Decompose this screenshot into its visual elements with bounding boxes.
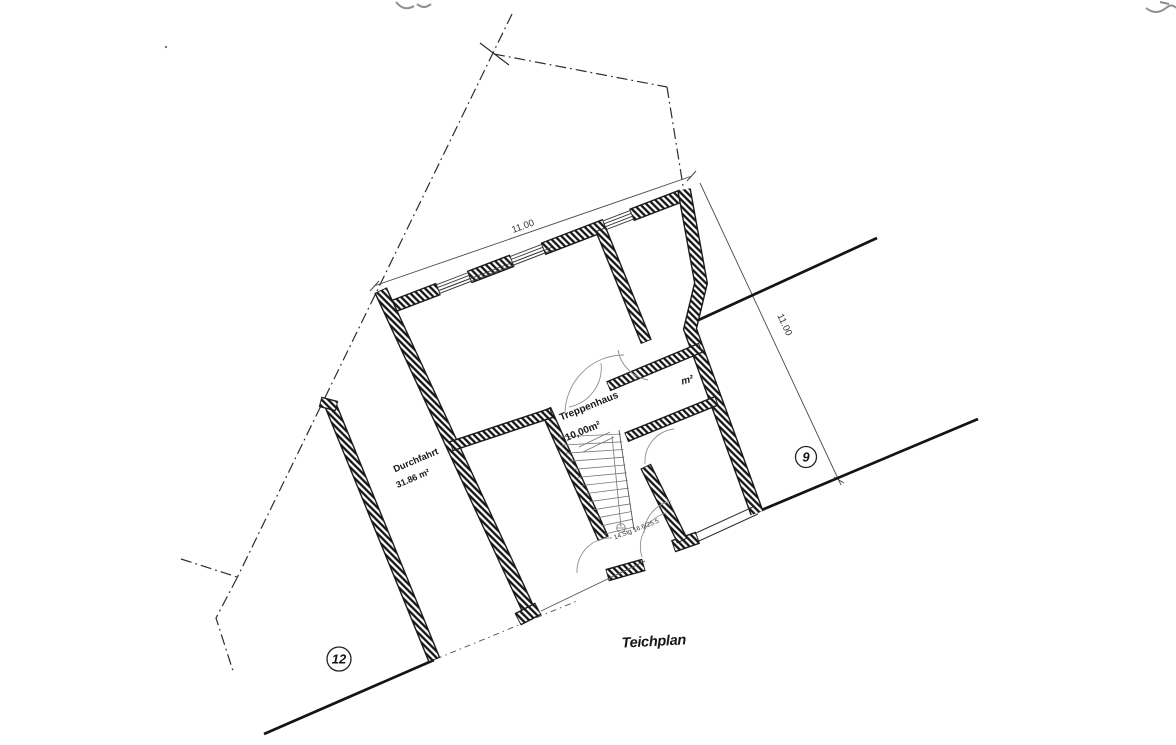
svg-text:12: 12: [332, 652, 347, 667]
svg-text:9: 9: [802, 450, 810, 465]
svg-text:Teichplan: Teichplan: [621, 632, 687, 651]
